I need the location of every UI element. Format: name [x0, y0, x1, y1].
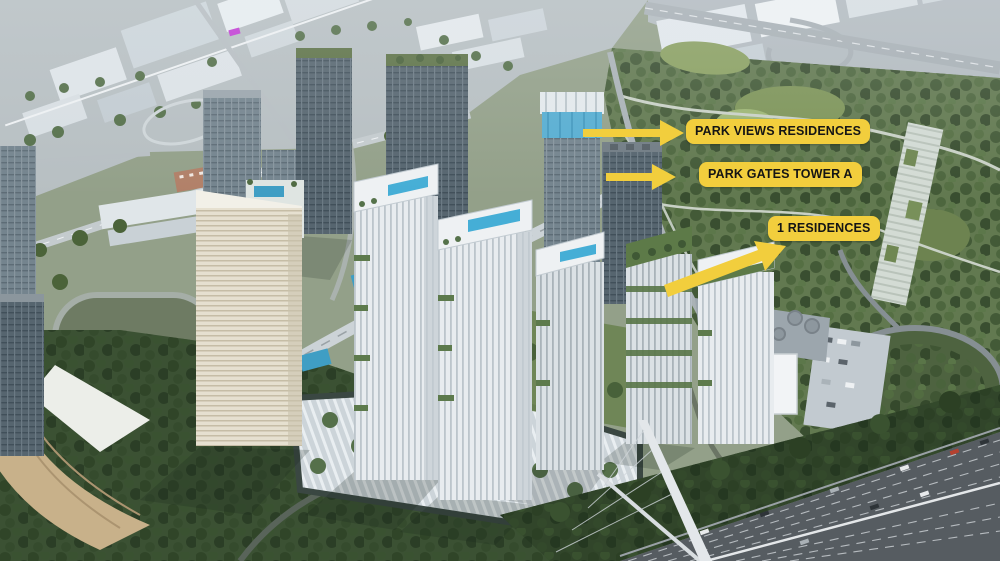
- callout-park-gates-tower-a: PARK GATES TOWER A: [699, 162, 862, 187]
- haze-overlay: [0, 0, 1000, 561]
- callout-1-residences: 1 RESIDENCES: [768, 216, 880, 241]
- aerial-development-render: PARK VIEWS RESIDENCES PARK GATES TOWER A…: [0, 0, 1000, 561]
- aerial-city-scene: [0, 0, 1000, 561]
- callout-park-views-residences: PARK VIEWS RESIDENCES: [686, 119, 870, 144]
